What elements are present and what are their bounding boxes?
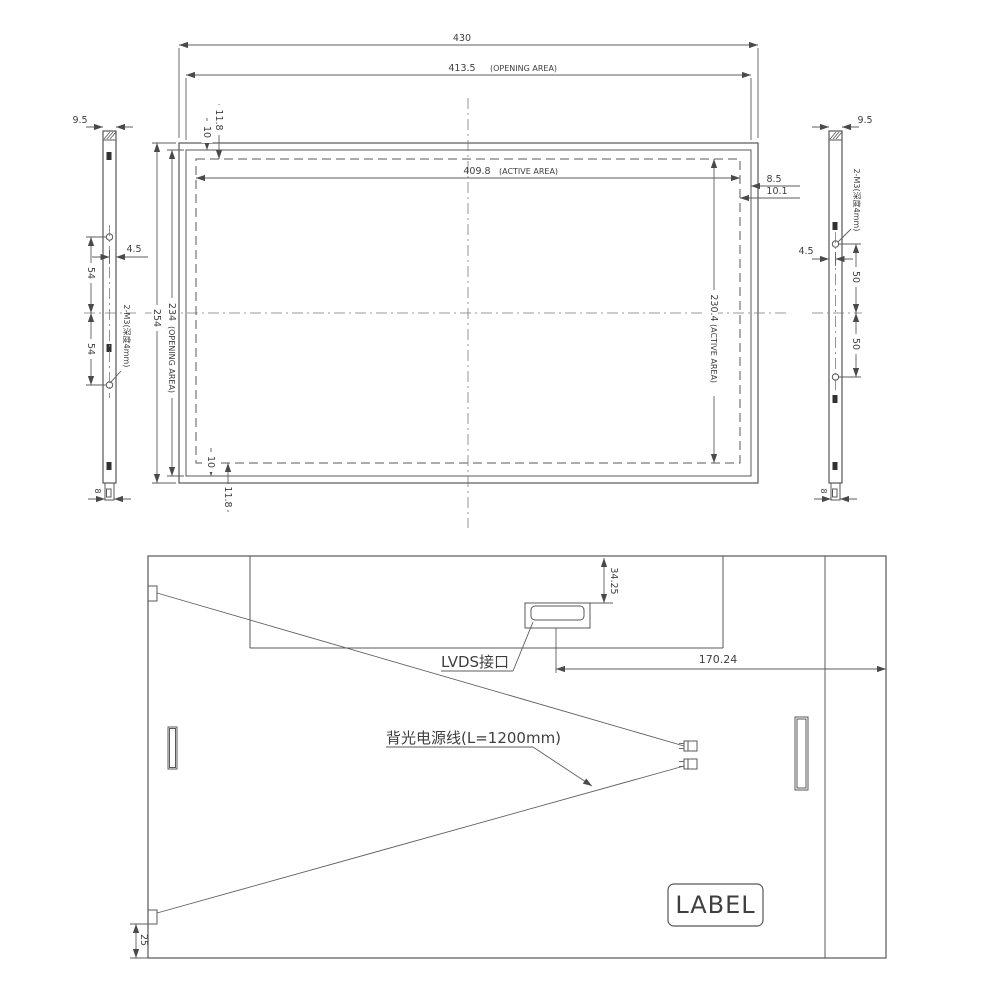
mechanical-drawing-sheet: 430 413.5 (OPENING AREA) 409.8 (ACTIVE A… [0,0,1000,1000]
dim-edge-opening-right-label: 8.5 [766,174,781,185]
dim-active-width-suffix: (ACTIVE AREA) [499,167,558,176]
label-box-text: LABEL [675,891,755,919]
left-dim-pitch-upper-label: 54 [85,267,96,279]
left-dim-hole-offset-label: 4.5 [126,244,141,255]
rear-top-cable-clip [148,586,157,601]
dim-connector-to-edge-label: 170.24 [699,653,738,666]
dim-edge-opening-top-label: 10 [201,126,212,138]
left-side-body [103,131,116,483]
dim-opening-width-label: 413.5 [448,63,475,74]
front-view: 430 413.5 (OPENING AREA) 409.8 (ACTIVE A… [145,33,800,528]
backlight-cable-lower [157,766,684,913]
right-dim-thickness-label: 9.5 [857,115,872,126]
left-dim-bottom-tab-label: 8 [93,488,102,493]
lvds-label: LVDS接口 [441,653,509,671]
right-dim-pitch-upper-label: 50 [850,271,861,283]
dim-overall-height-label: 254 [151,309,162,327]
left-dim-thickness-label: 9.5 [72,115,87,126]
rear-bottom-cable-clip [148,910,157,924]
dim-edge-active-bottom-label: 11.8 [222,486,233,507]
dim-clip-from-bottom-label: 25 [138,934,149,946]
backlight-plug-lower [684,759,697,769]
left-dim-pitch-lower-label: 54 [85,343,96,355]
right-side-view: 9.5 4.5 50 50 2-M3(深度4mm) 8 [798,115,872,500]
backlight-plug-upper [684,741,697,751]
right-dim-pitch-lower-label: 50 [850,338,861,350]
dim-active-height-label: 230.4 [708,294,719,321]
lvds-connector [525,603,590,628]
lvds-connector-slot [531,606,584,620]
dim-opening-height-suffix: (OPENING AREA) [167,326,176,393]
right-dim-hole-offset-label: 4.5 [798,246,813,257]
rear-view: 34.25 170.24 LVDS接口 背光电源线(L=1200mm) [130,556,886,958]
dim-opening-height-label: 234 [166,303,177,321]
rear-outline [148,556,886,958]
backlight-cable-label: 背光电源线(L=1200mm) [386,729,561,747]
dim-opening-width-suffix: (OPENING AREA) [490,64,557,73]
left-side-view: 9.5 4.5 54 54 2-M3(深度4mm) 8 [72,115,148,500]
right-side-body [829,131,842,483]
right-dim-bottom-tab-label: 8 [819,488,828,493]
backlight-cable-upper [157,593,684,746]
dim-active-height-suffix: (ACTIVE AREA) [709,324,718,383]
left-screw-note-label: 2-M3(深度4mm) [122,305,132,368]
dim-active-width-label: 409.8 [463,166,490,177]
dim-edge-active-right-label: 10.1 [766,186,787,197]
dim-edge-opening-bottom-label: 10 [205,456,216,468]
dim-edge-active-top-label: 11.8 [213,109,224,130]
dim-overall-width-label: 430 [453,33,471,44]
right-screw-note-label: 2-M3(深度4mm) [852,169,862,232]
dim-connector-from-top-label: 34.25 [608,567,619,594]
drawing-svg: 430 413.5 (OPENING AREA) 409.8 (ACTIVE A… [0,0,1000,1000]
